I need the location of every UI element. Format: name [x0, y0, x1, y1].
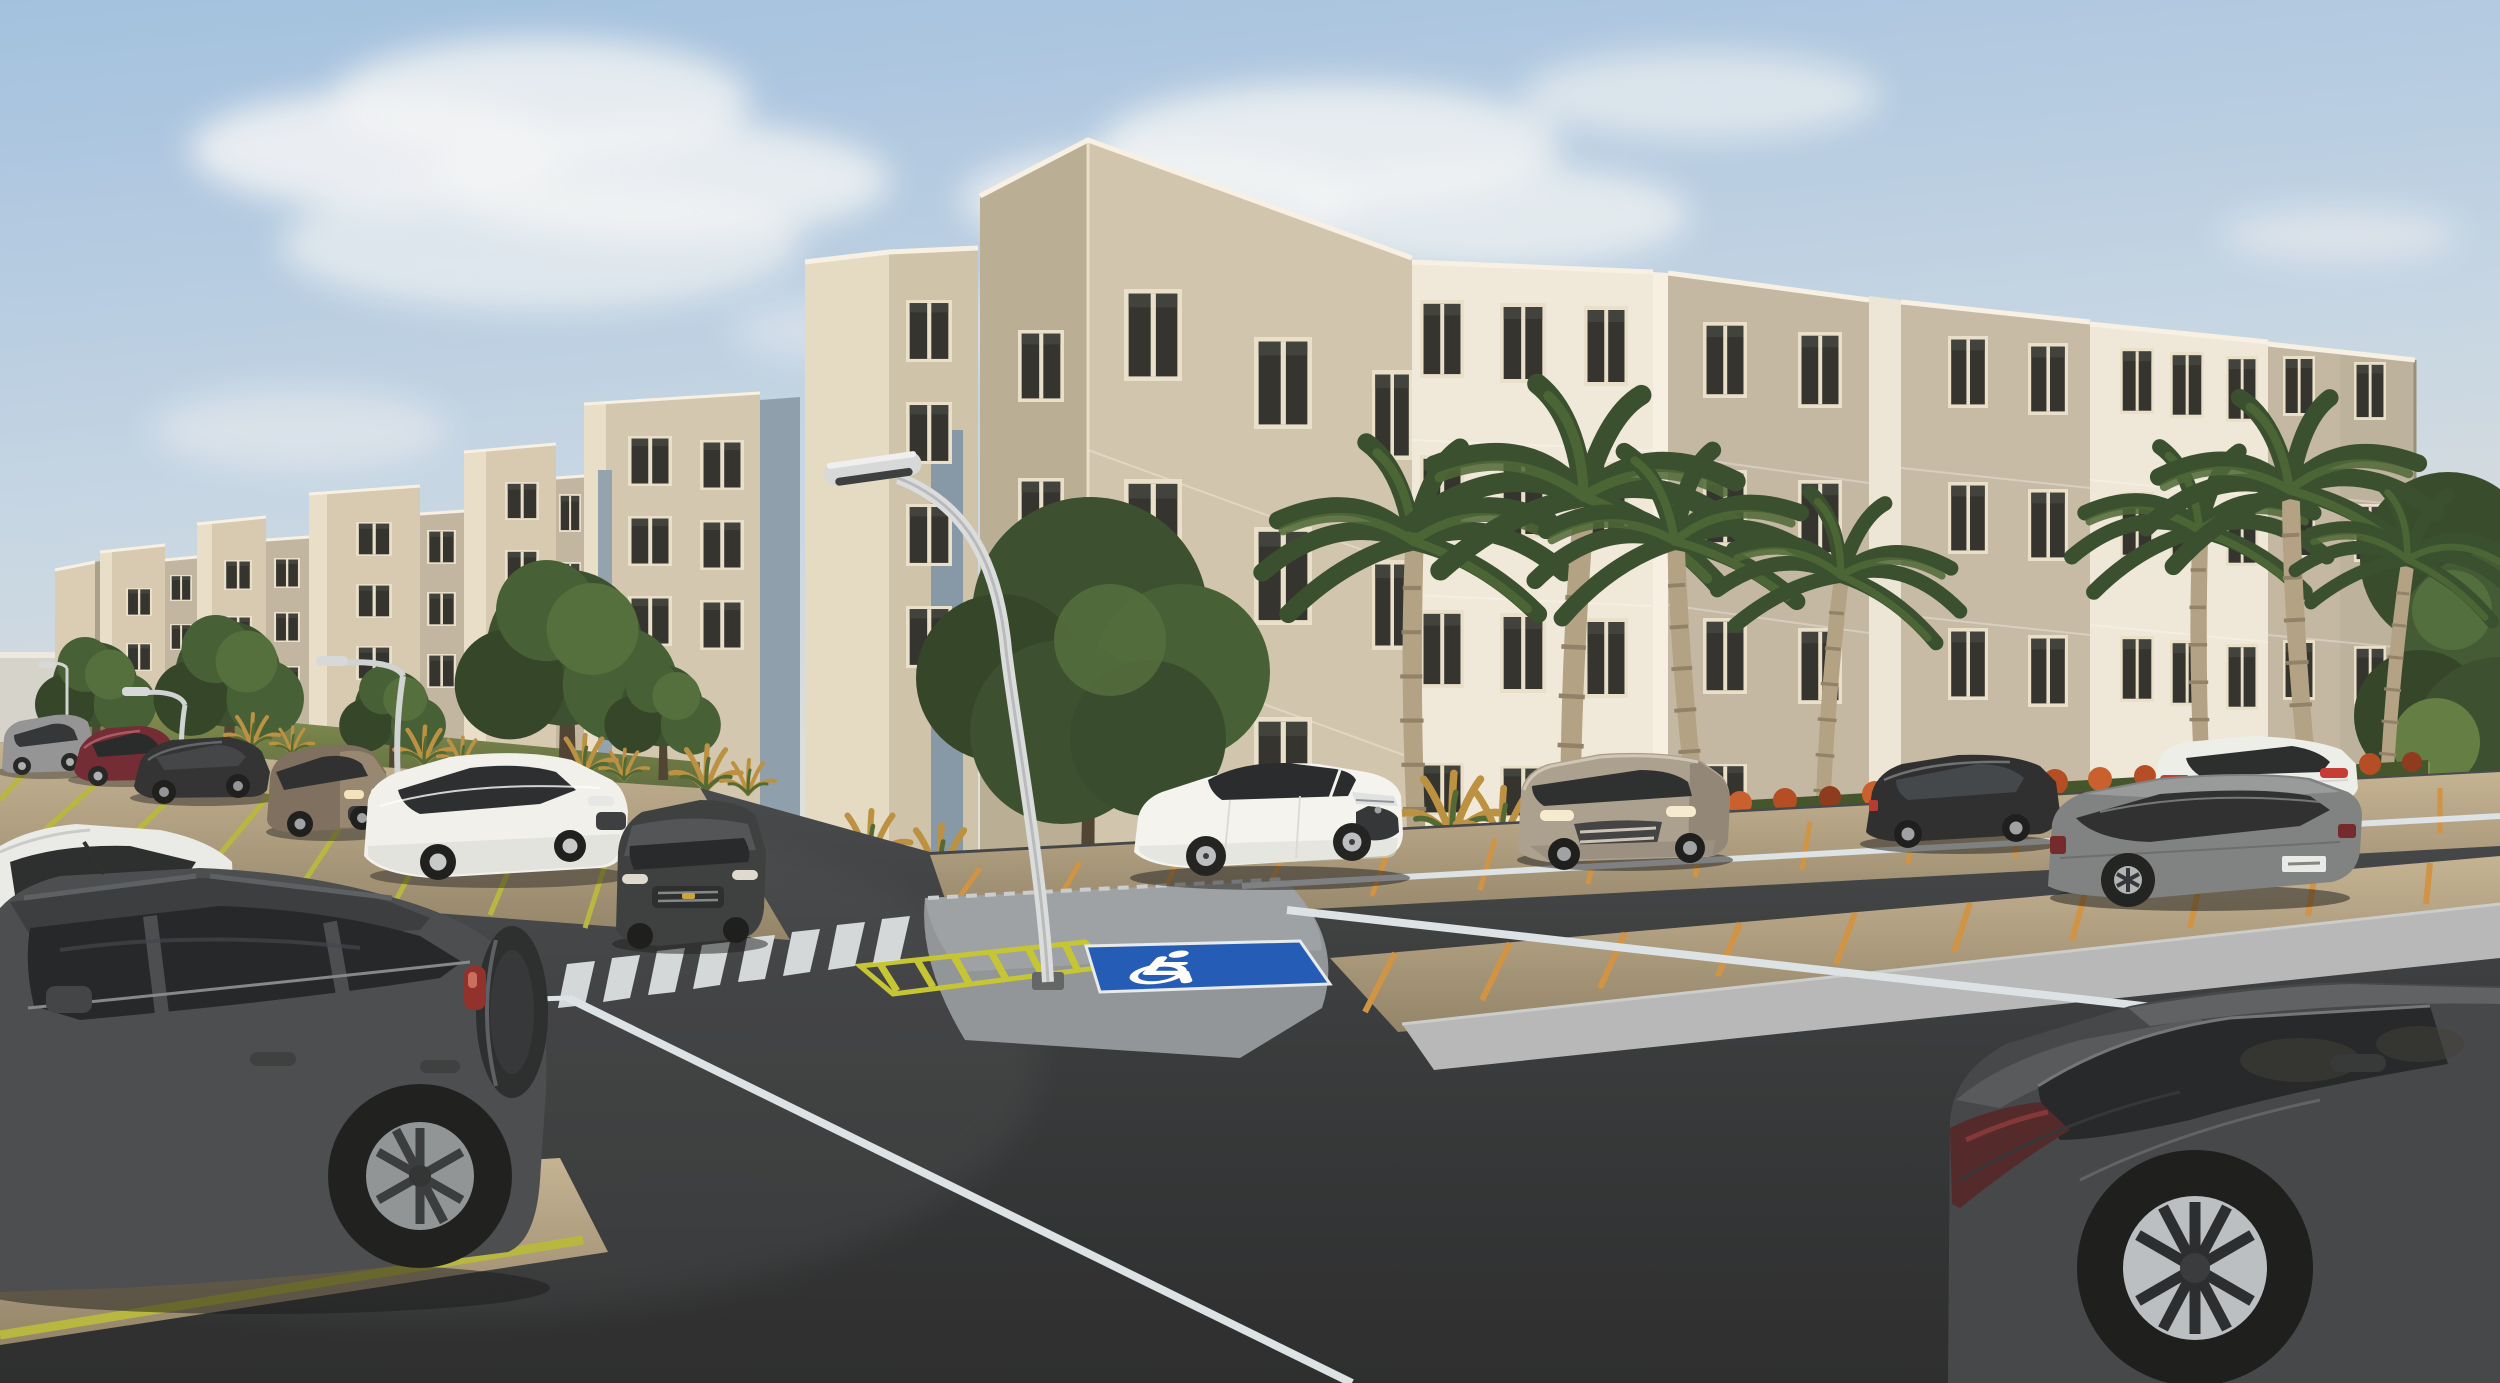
- scene: [0, 0, 2500, 1383]
- rendering-canvas: [0, 0, 2500, 1383]
- warm-light-overlay: [0, 0, 2500, 1383]
